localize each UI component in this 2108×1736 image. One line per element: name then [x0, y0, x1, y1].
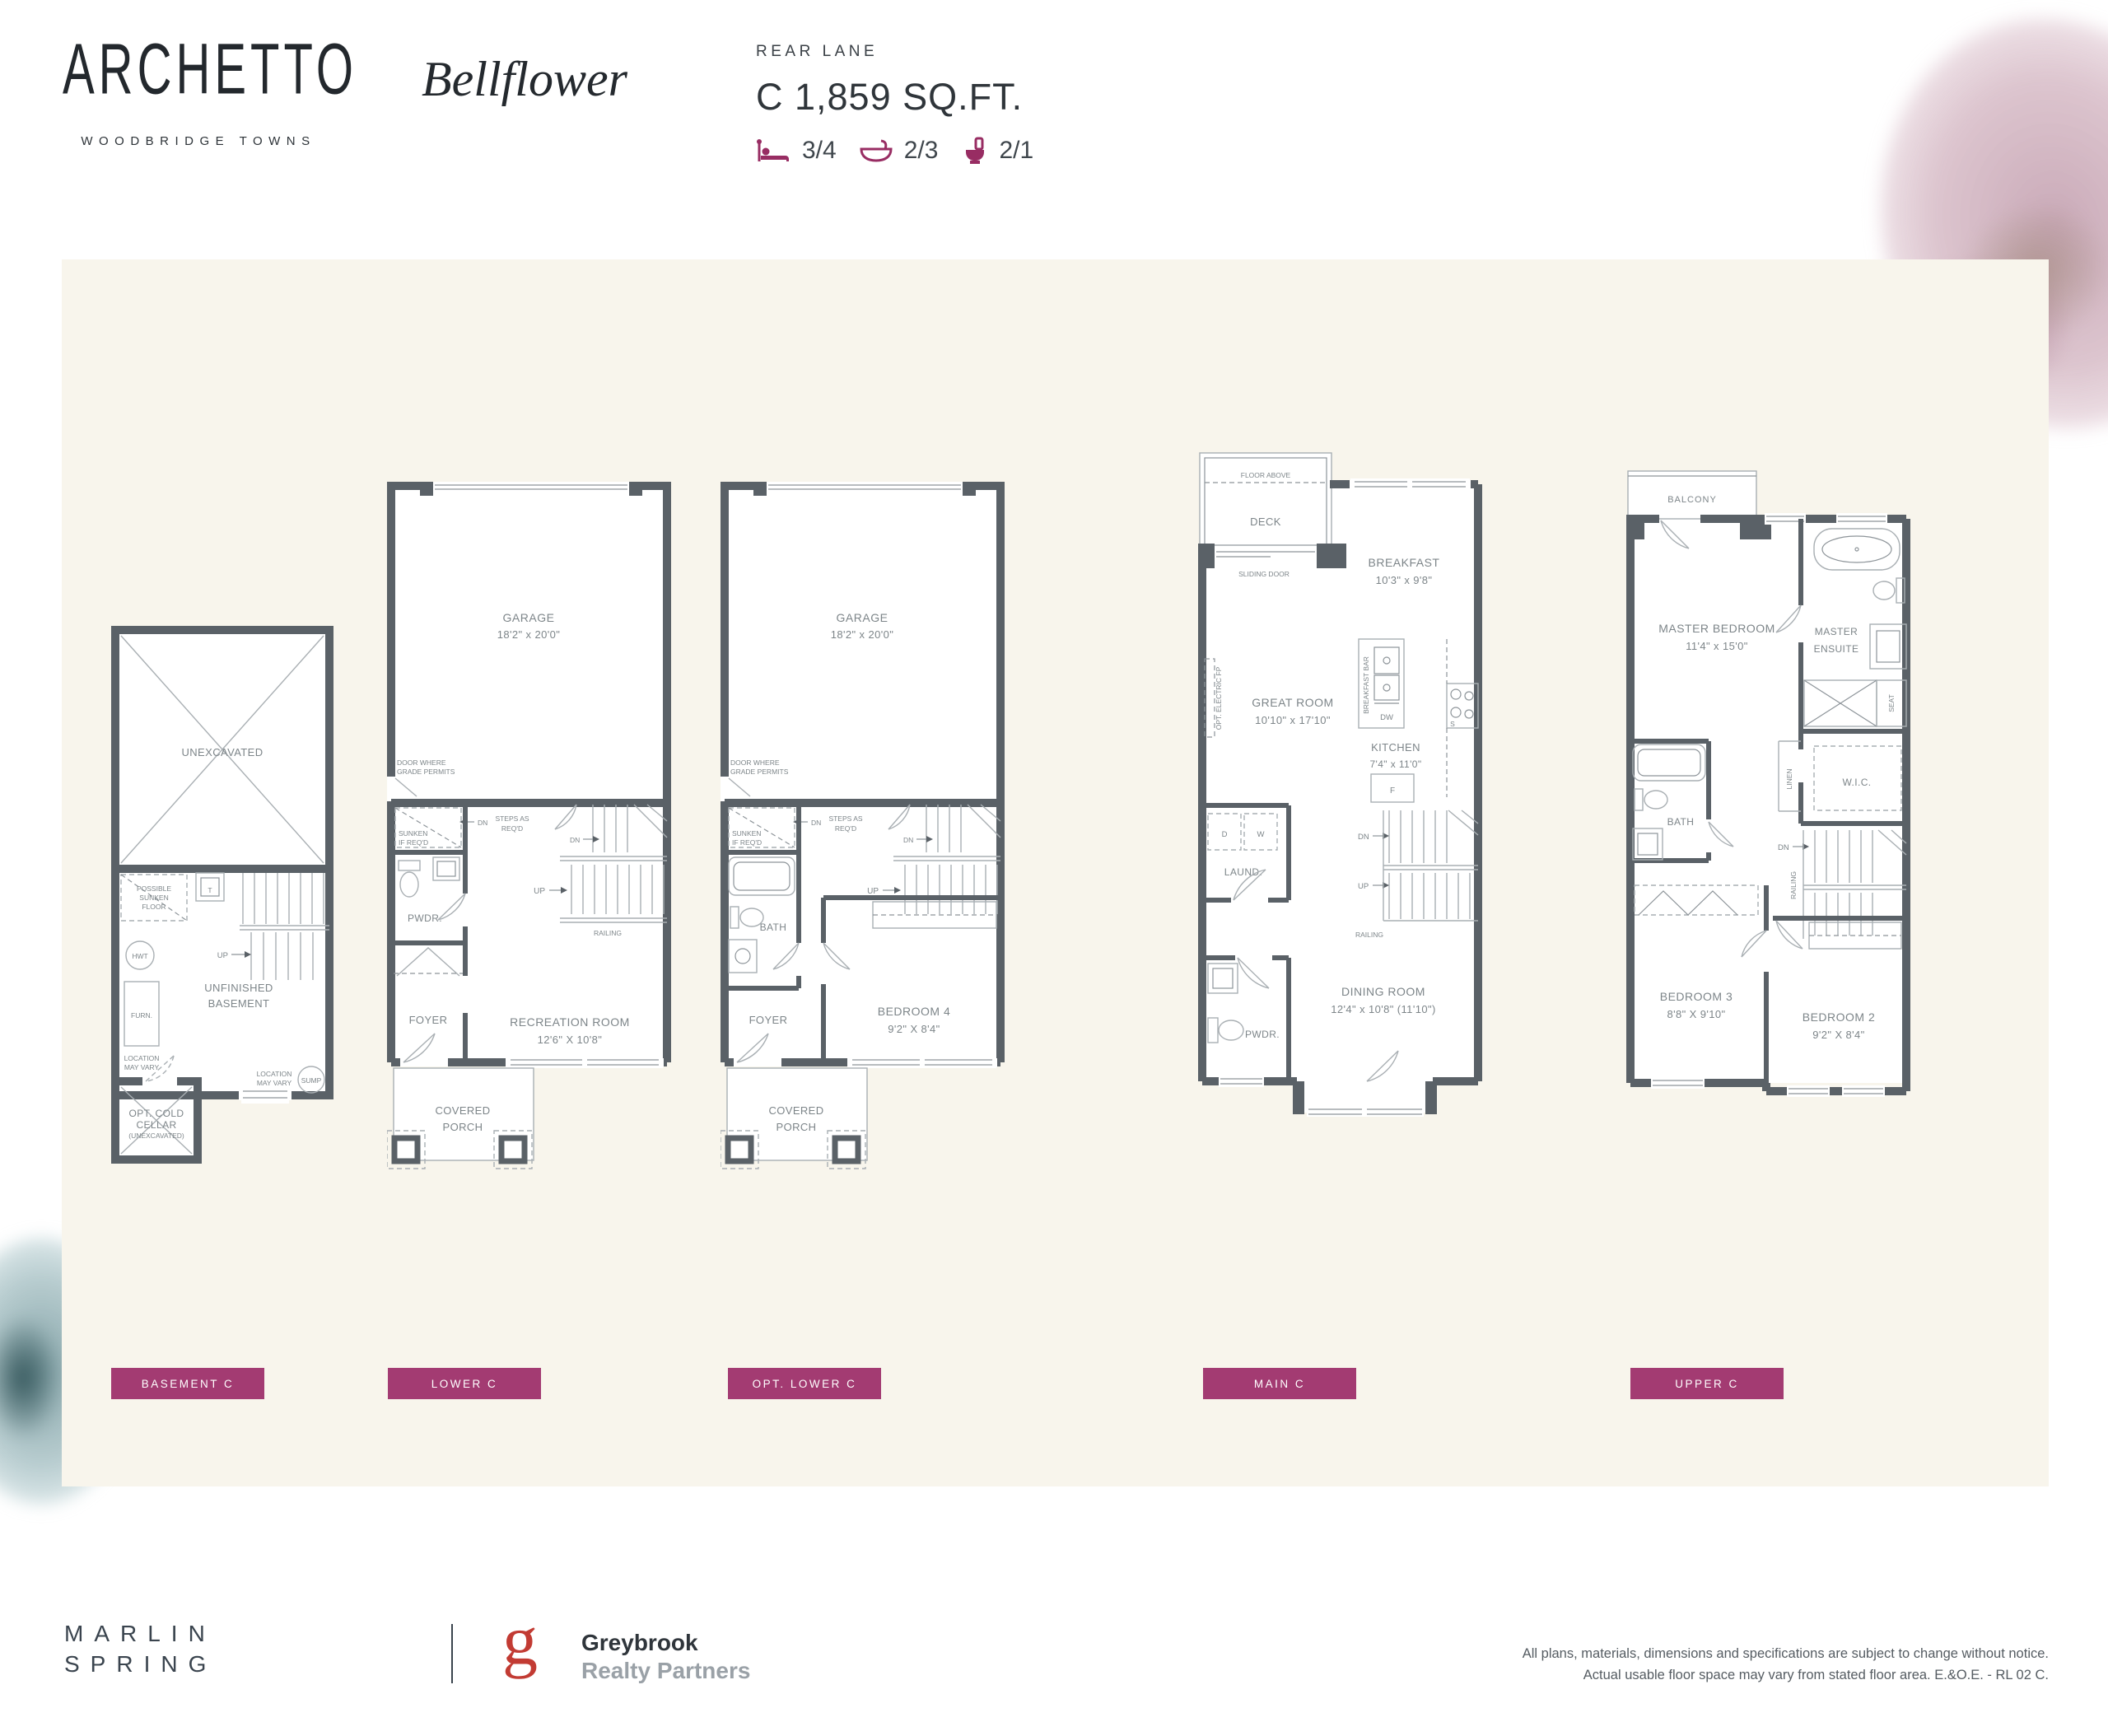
svg-text:LOCATION: LOCATION: [257, 1070, 292, 1078]
label-linen: LINEN: [1785, 768, 1793, 789]
svg-text:11'4" x 15'0": 11'4" x 15'0": [1686, 640, 1748, 652]
footer-divider: [451, 1624, 453, 1683]
svg-text:POSSIBLE: POSSIBLE: [137, 884, 171, 893]
label-bedroom4: BEDROOM 4: [878, 1005, 951, 1018]
svg-text:PORCH: PORCH: [443, 1121, 483, 1133]
svg-text:10'10" x 17'10": 10'10" x 17'10": [1255, 714, 1331, 726]
label-unexcavated: UNEXCAVATED: [181, 746, 263, 758]
marlin-line1: MARLIN: [64, 1619, 217, 1650]
label-wic: W.I.C.: [1842, 777, 1871, 788]
label-bedroom2: BEDROOM 2: [1803, 1010, 1876, 1024]
label-breakfast-bar: BREAKFAST BAR: [1362, 656, 1370, 714]
floorplan-board: UNEXCAVATED POSSIBLE SUNKEN FLOOR T: [62, 259, 2049, 1486]
label-bath: BATH: [760, 922, 787, 933]
stat-bedrooms: 3/4: [756, 137, 837, 165]
svg-text:FURN.: FURN.: [131, 1011, 152, 1020]
svg-text:BASEMENT: BASEMENT: [208, 997, 270, 1010]
label-deck: DECK: [1250, 516, 1281, 528]
lower-floorplan: GARAGE 18'2" x 20'0" DOOR WHERE GRADE PE…: [387, 482, 671, 1174]
label-dw: DW: [1380, 713, 1393, 722]
svg-text:(UNEXCAVATED): (UNEXCAVATED): [128, 1132, 184, 1140]
marlin-spring-logo: MARLIN SPRING: [64, 1619, 217, 1680]
svg-text:COVERED: COVERED: [768, 1104, 823, 1117]
tag-opt-lower: OPT. LOWER C: [728, 1368, 881, 1399]
tag-main: MAIN C: [1203, 1368, 1356, 1399]
svg-text:SUNKEN: SUNKEN: [139, 894, 168, 902]
label-up: UP: [534, 887, 545, 896]
bath-icon: [858, 138, 894, 164]
basement-window: [239, 1085, 291, 1104]
svg-text:GRADE PERMITS: GRADE PERMITS: [397, 768, 455, 776]
main-floorplan: FLOOR ABOVE DECK SLIDING DOOR: [1198, 451, 1482, 1118]
svg-text:STEPS AS: STEPS AS: [828, 814, 862, 823]
stat-bedrooms-value: 3/4: [802, 137, 837, 165]
svg-text:8'8" X 9'10": 8'8" X 9'10": [1667, 1008, 1725, 1020]
svg-text:LOCATION: LOCATION: [124, 1054, 160, 1062]
svg-text:PORCH: PORCH: [777, 1121, 817, 1133]
breakfast-window: [1350, 478, 1471, 490]
svg-text:REQ'D: REQ'D: [835, 824, 856, 833]
label-dn: DN: [1358, 833, 1369, 842]
marlin-line2: SPRING: [64, 1650, 217, 1680]
svg-text:GRADE PERMITS: GRADE PERMITS: [730, 768, 789, 776]
label-pwdr: PWDR.: [408, 912, 442, 924]
label-pwdr: PWDR.: [1245, 1029, 1280, 1040]
label-great-room: GREAT ROOM: [1252, 696, 1333, 709]
svg-text:CELLAR: CELLAR: [136, 1119, 176, 1131]
brochure-page: ARCHETTO WOODBRIDGE TOWNS Bellflower REA…: [0, 0, 2108, 1736]
label-foyer: FOYER: [409, 1014, 448, 1026]
svg-text:DOOR WHERE: DOOR WHERE: [730, 758, 780, 767]
stat-powder: 2/1: [959, 137, 1033, 165]
greybrook-logo: Greybrook Realty Partners: [581, 1629, 750, 1684]
tag-upper: UPPER C: [1630, 1368, 1784, 1399]
svg-text:12'4" x 10'8" (11'10"): 12'4" x 10'8" (11'10"): [1331, 1003, 1435, 1015]
label-dn-stairs: DN: [570, 836, 580, 844]
label-railing: RAILING: [1789, 871, 1798, 899]
svg-text:OPT. COLD: OPT. COLD: [129, 1108, 184, 1119]
svg-text:SUNKEN: SUNKEN: [399, 829, 427, 838]
svg-text:10'3" x 9'8": 10'3" x 9'8": [1376, 574, 1433, 586]
label-up: UP: [1358, 882, 1369, 891]
svg-text:COVERED: COVERED: [435, 1104, 490, 1117]
brand-tagline: WOODBRIDGE TOWNS: [63, 134, 334, 148]
label-balcony: BALCONY: [1667, 495, 1717, 505]
model-name: Bellflower: [422, 51, 627, 108]
label-bath: BATH: [1667, 816, 1695, 828]
label-floor-above: FLOOR ABOVE: [1241, 471, 1291, 479]
svg-text:STEPS AS: STEPS AS: [495, 814, 529, 823]
bed-icon: [756, 138, 792, 163]
svg-text:REQ'D: REQ'D: [501, 824, 523, 833]
disclaimer-line2: Actual usable floor space may vary from …: [1523, 1665, 2049, 1687]
tag-basement: BASEMENT C: [111, 1368, 264, 1399]
svg-text:HWT: HWT: [132, 952, 147, 960]
label-sliding-door: SLIDING DOOR: [1238, 570, 1290, 578]
label-washer: W: [1257, 830, 1265, 839]
svg-text:MAY VARY: MAY VARY: [124, 1063, 160, 1071]
label-kitchen: KITCHEN: [1371, 741, 1420, 754]
svg-text:DOOR WHERE: DOOR WHERE: [397, 758, 446, 767]
label-seat: SEAT: [1887, 694, 1896, 712]
label-master-bedroom: MASTER BEDROOM: [1658, 622, 1775, 635]
svg-text:18'2" x 20'0": 18'2" x 20'0": [497, 628, 561, 641]
svg-text:12'6" X 10'8": 12'6" X 10'8": [538, 1034, 603, 1046]
label-breakfast: BREAKFAST: [1369, 556, 1440, 569]
label-bedroom3: BEDROOM 3: [1660, 990, 1733, 1003]
svg-text:9'2" X 8'4": 9'2" X 8'4": [1812, 1029, 1864, 1041]
label-master-ensuite: MASTER: [1815, 626, 1858, 637]
label-unfinished-basement: UNFINISHED: [204, 982, 273, 994]
disclaimer: All plans, materials, dimensions and spe…: [1523, 1644, 2049, 1686]
label-foyer: FOYER: [749, 1014, 788, 1026]
svg-text:SUMP: SUMP: [301, 1076, 322, 1085]
label-garage: GARAGE: [837, 611, 888, 624]
svg-text:7'4" x 11'0": 7'4" x 11'0": [1369, 758, 1421, 770]
label-garage: GARAGE: [503, 611, 555, 624]
brand-name: ARCHETTO: [63, 28, 334, 111]
disclaimer-line1: All plans, materials, dimensions and spe…: [1523, 1644, 2049, 1665]
plan-size: C 1,859 SQ.FT.: [756, 76, 1033, 119]
upper-floorplan: BALCONY MASTER BEDROOM 11'4" x 1: [1626, 469, 1910, 1120]
svg-text:F: F: [1390, 786, 1395, 796]
basement-floorplan: UNEXCAVATED POSSIBLE SUNKEN FLOOR T: [111, 626, 333, 1169]
svg-text:IF REQ'D: IF REQ'D: [732, 838, 762, 847]
label-dn-left: DN: [811, 819, 821, 827]
greybrook-g-icon: g: [502, 1604, 538, 1675]
svg-text:SUNKEN: SUNKEN: [732, 829, 761, 838]
brand-logo: ARCHETTO WOODBRIDGE TOWNS: [63, 28, 334, 148]
rec-window: [506, 1057, 664, 1068]
label-up: UP: [217, 951, 228, 960]
label-railing: RAILING: [594, 929, 622, 937]
svg-text:IF REQ'D: IF REQ'D: [399, 838, 428, 847]
label-dn: DN: [1778, 843, 1789, 852]
label-dining: DINING ROOM: [1341, 985, 1425, 998]
svg-text:T: T: [208, 886, 212, 894]
greybrook-line2: Realty Partners: [581, 1657, 750, 1685]
svg-text:OPT. ELECTRIC FP: OPT. ELECTRIC FP: [1215, 666, 1223, 730]
svg-text:9'2" X 8'4": 9'2" X 8'4": [888, 1023, 940, 1035]
toilet-icon: [959, 137, 989, 165]
stat-powder-value: 2/1: [999, 137, 1033, 165]
tag-lower: LOWER C: [388, 1368, 541, 1399]
lane-type: REAR LANE: [756, 43, 1033, 61]
bed4-window: [847, 1057, 997, 1068]
stat-baths: 2/3: [858, 137, 939, 165]
label-recreation: RECREATION ROOM: [510, 1015, 630, 1029]
svg-text:FLOOR: FLOOR: [142, 903, 166, 911]
plan-stats: 3/4 2/3 2/1: [756, 137, 1033, 165]
svg-text:18'2" x 20'0": 18'2" x 20'0": [831, 628, 894, 641]
svg-text:ENSUITE: ENSUITE: [1814, 643, 1859, 655]
opt-lower-floorplan: GARAGE 18'2" x 20'0" DOOR WHERE GRADE PE…: [721, 482, 1005, 1174]
greybrook-line1: Greybrook: [581, 1629, 750, 1657]
plan-info: REAR LANE C 1,859 SQ.FT. 3/4 2/3: [756, 43, 1033, 165]
label-up: UP: [867, 887, 879, 896]
label-dryer: D: [1222, 830, 1228, 839]
stat-baths-value: 2/3: [904, 137, 939, 165]
label-dn-left: DN: [478, 819, 487, 827]
label-stove: S: [1450, 720, 1455, 728]
label-dn-stairs: DN: [903, 836, 913, 844]
label-railing: RAILING: [1355, 931, 1383, 939]
